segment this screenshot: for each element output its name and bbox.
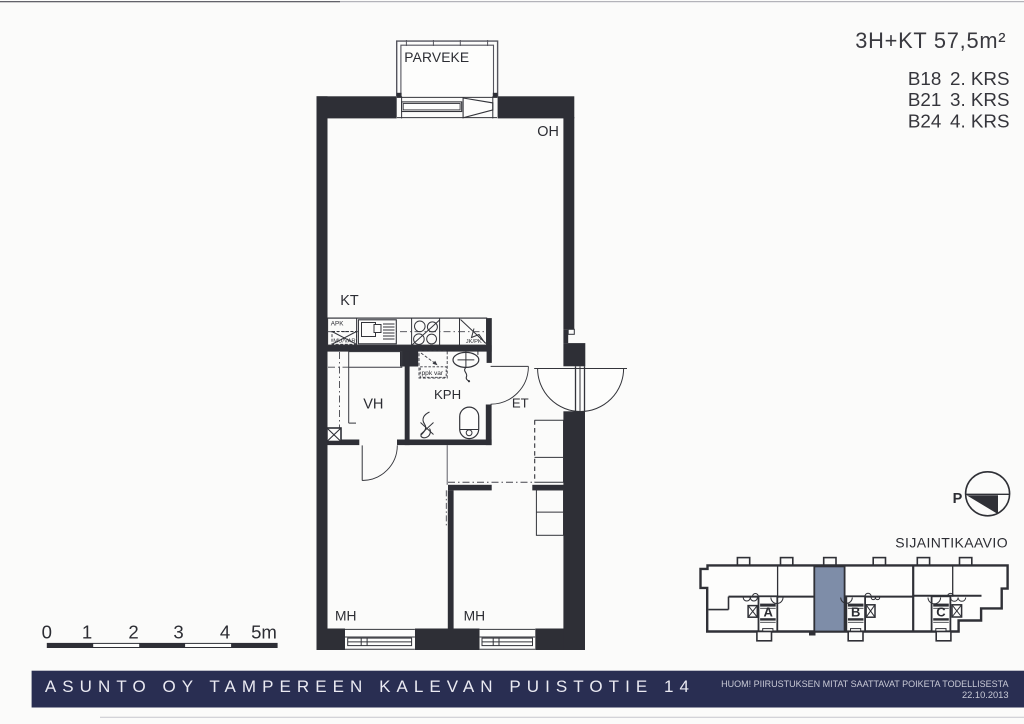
svg-text:P: P: [953, 491, 963, 507]
svg-text:C: C: [936, 605, 946, 620]
svg-text:5m: 5m: [251, 622, 277, 643]
svg-text:OH: OH: [537, 124, 559, 140]
svg-text:MU/VAR: MU/VAR: [333, 339, 355, 345]
svg-text:4. KRS: 4. KRS: [950, 111, 1010, 132]
svg-text:1: 1: [82, 622, 92, 643]
svg-text:3. KRS: 3. KRS: [950, 89, 1010, 110]
svg-text:MH: MH: [464, 609, 485, 624]
svg-text:APK: APK: [331, 321, 344, 328]
svg-text:HUOM! PIIRUSTUKSEN MITAT SAATT: HUOM! PIIRUSTUKSEN MITAT SAATTAVAT POIKE…: [721, 679, 1008, 689]
svg-text:3: 3: [173, 622, 183, 643]
svg-text:ET: ET: [512, 395, 529, 410]
svg-text:0: 0: [42, 622, 52, 643]
svg-text:B24: B24: [908, 111, 941, 132]
svg-text:ppk var: ppk var: [422, 370, 444, 377]
svg-text:2. KRS: 2. KRS: [950, 68, 1010, 89]
svg-text:B21: B21: [908, 89, 941, 110]
svg-text:A: A: [764, 605, 774, 620]
svg-text:22.10.2013: 22.10.2013: [962, 690, 1009, 700]
svg-text:3H+KT 57,5m²: 3H+KT 57,5m²: [855, 28, 1006, 53]
svg-text:PARVEKE: PARVEKE: [404, 50, 469, 65]
svg-text:JK/PK: JK/PK: [466, 339, 482, 345]
svg-text:VH: VH: [363, 396, 383, 412]
svg-text:KT: KT: [340, 293, 359, 309]
svg-text:4: 4: [220, 622, 230, 643]
svg-text:MH: MH: [335, 609, 356, 624]
svg-text:B18: B18: [908, 68, 941, 89]
svg-text:2: 2: [128, 622, 138, 643]
svg-text:KPH: KPH: [434, 387, 461, 402]
svg-text:SIJAINTIKAAVIO: SIJAINTIKAAVIO: [895, 535, 1008, 551]
svg-text:B: B: [851, 605, 860, 620]
svg-text:ASUNTO OY TAMPEREEN KALEVAN PU: ASUNTO OY TAMPEREEN KALEVAN PUISTOTIE 14: [45, 677, 695, 696]
